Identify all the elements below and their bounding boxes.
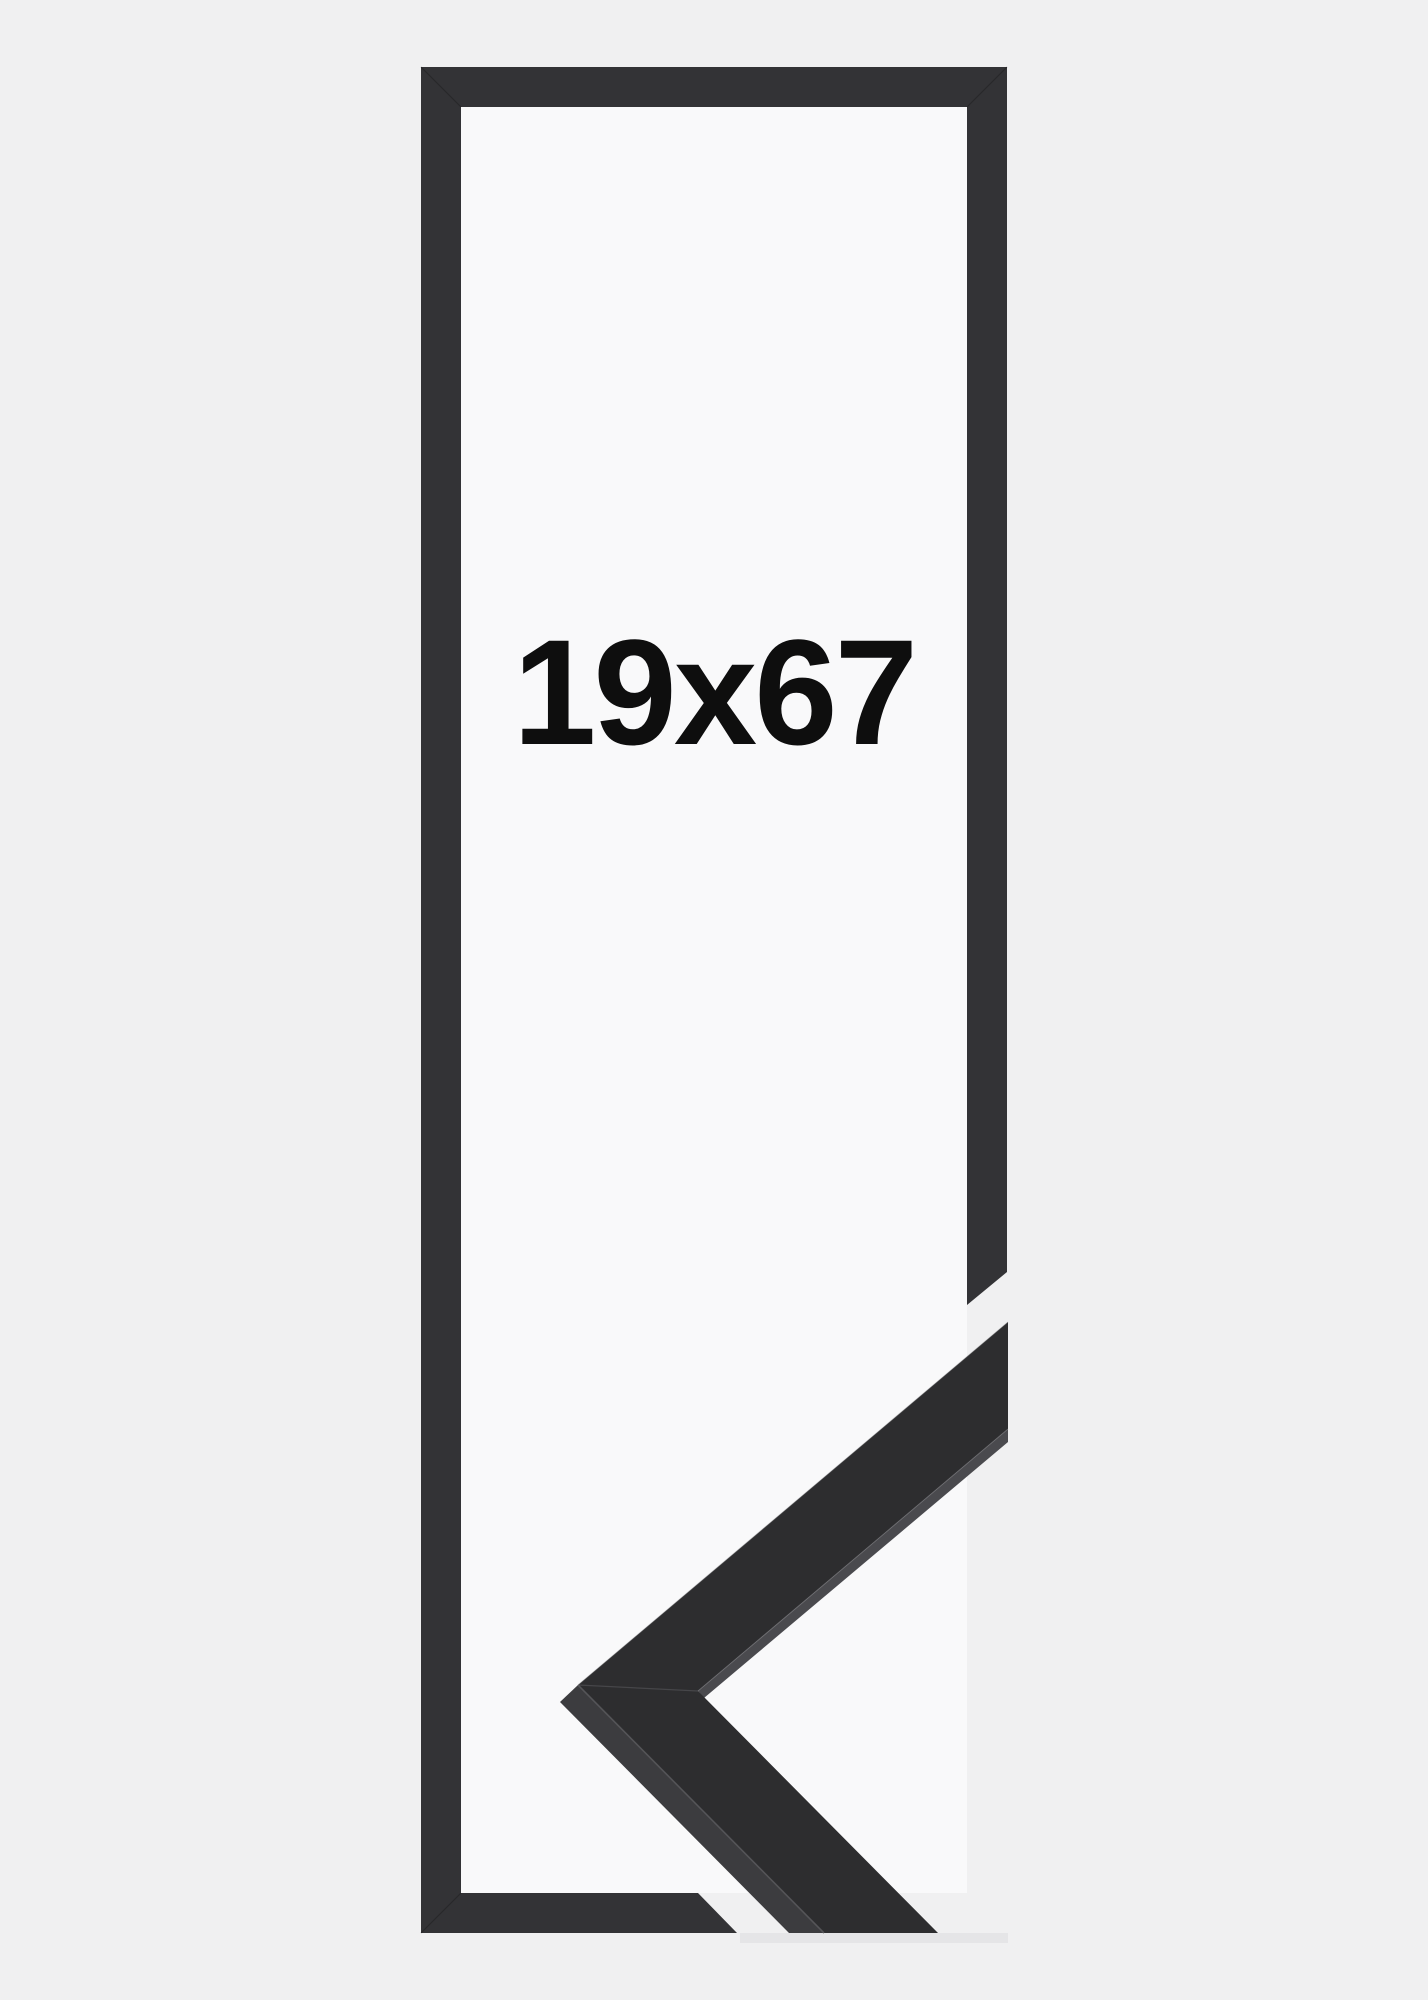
product-image-stage: 19x67 [0, 0, 1428, 2000]
moulding-shadow [740, 1933, 1008, 1943]
size-label: 19x67 [513, 608, 915, 776]
frame-illustration: 19x67 [0, 0, 1428, 2000]
